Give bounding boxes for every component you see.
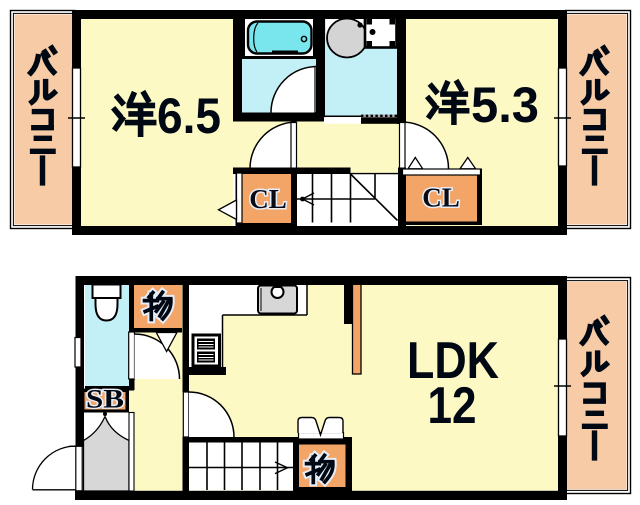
- svg-text:6.5: 6.5: [157, 88, 221, 144]
- svg-text:12: 12: [428, 377, 477, 435]
- svg-text:CL: CL: [422, 183, 460, 213]
- svg-text:CL: CL: [249, 184, 287, 214]
- svg-text:5.3: 5.3: [471, 77, 539, 133]
- svg-text:SB: SB: [86, 384, 124, 413]
